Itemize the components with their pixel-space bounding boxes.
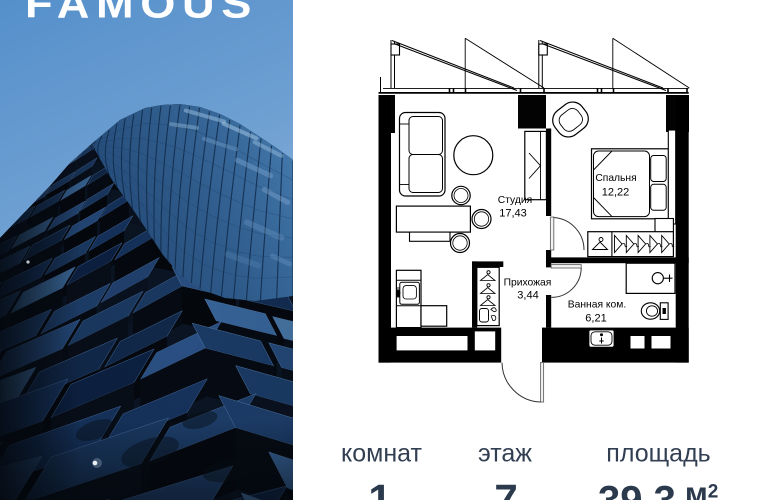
svg-text:площадь: площадь [606,439,710,467]
svg-text:этаж: этаж [478,439,532,467]
svg-text:Прихожая: Прихожая [504,277,552,288]
svg-text:6,21: 6,21 [585,313,606,325]
svg-text:Спальня: Спальня [595,173,636,184]
svg-text:39.3м2: 39.3м2 [598,476,718,500]
svg-text:17,43: 17,43 [499,208,527,220]
svg-text:Ванная ком.: Ванная ком. [568,300,626,311]
svg-text:FAMOUS: FAMOUS [25,0,258,27]
svg-text:7: 7 [494,476,517,500]
svg-text:1: 1 [368,476,391,500]
svg-text:Студия: Студия [498,195,532,206]
svg-text:12,22: 12,22 [602,186,630,198]
svg-text:3,44: 3,44 [517,290,538,302]
svg-text:комнат: комнат [341,439,422,467]
